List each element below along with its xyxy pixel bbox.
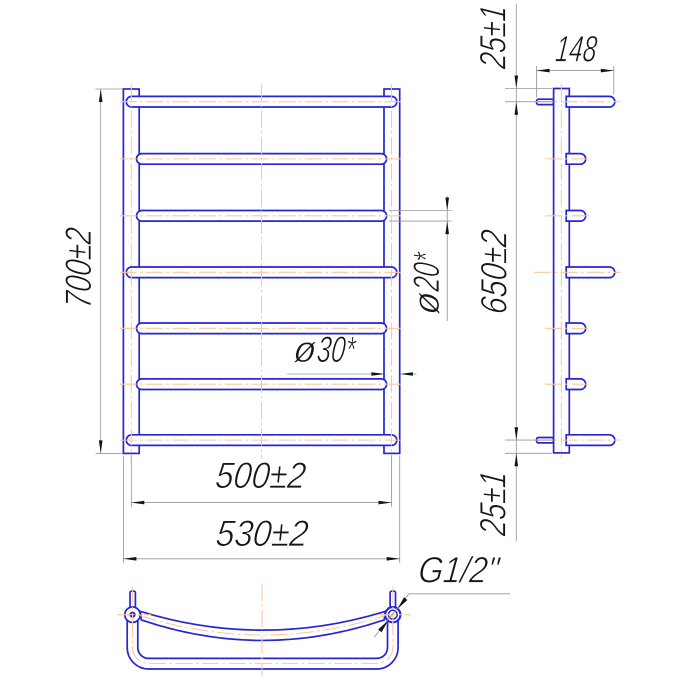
- svg-text:30*: 30*: [315, 328, 358, 370]
- svg-text:700±2: 700±2: [57, 225, 99, 310]
- svg-text:G1/2": G1/2": [417, 549, 503, 591]
- svg-text:ø: ø: [292, 328, 319, 370]
- svg-text:25±1: 25±1: [472, 469, 514, 538]
- svg-text:ø: ø: [405, 289, 447, 316]
- svg-text:20*: 20*: [405, 249, 447, 293]
- svg-text:530±2: 530±2: [214, 512, 311, 554]
- svg-text:650±2: 650±2: [473, 227, 515, 316]
- svg-text:500±2: 500±2: [214, 454, 309, 496]
- svg-text:25±1: 25±1: [472, 3, 514, 71]
- svg-text:148: 148: [554, 28, 600, 70]
